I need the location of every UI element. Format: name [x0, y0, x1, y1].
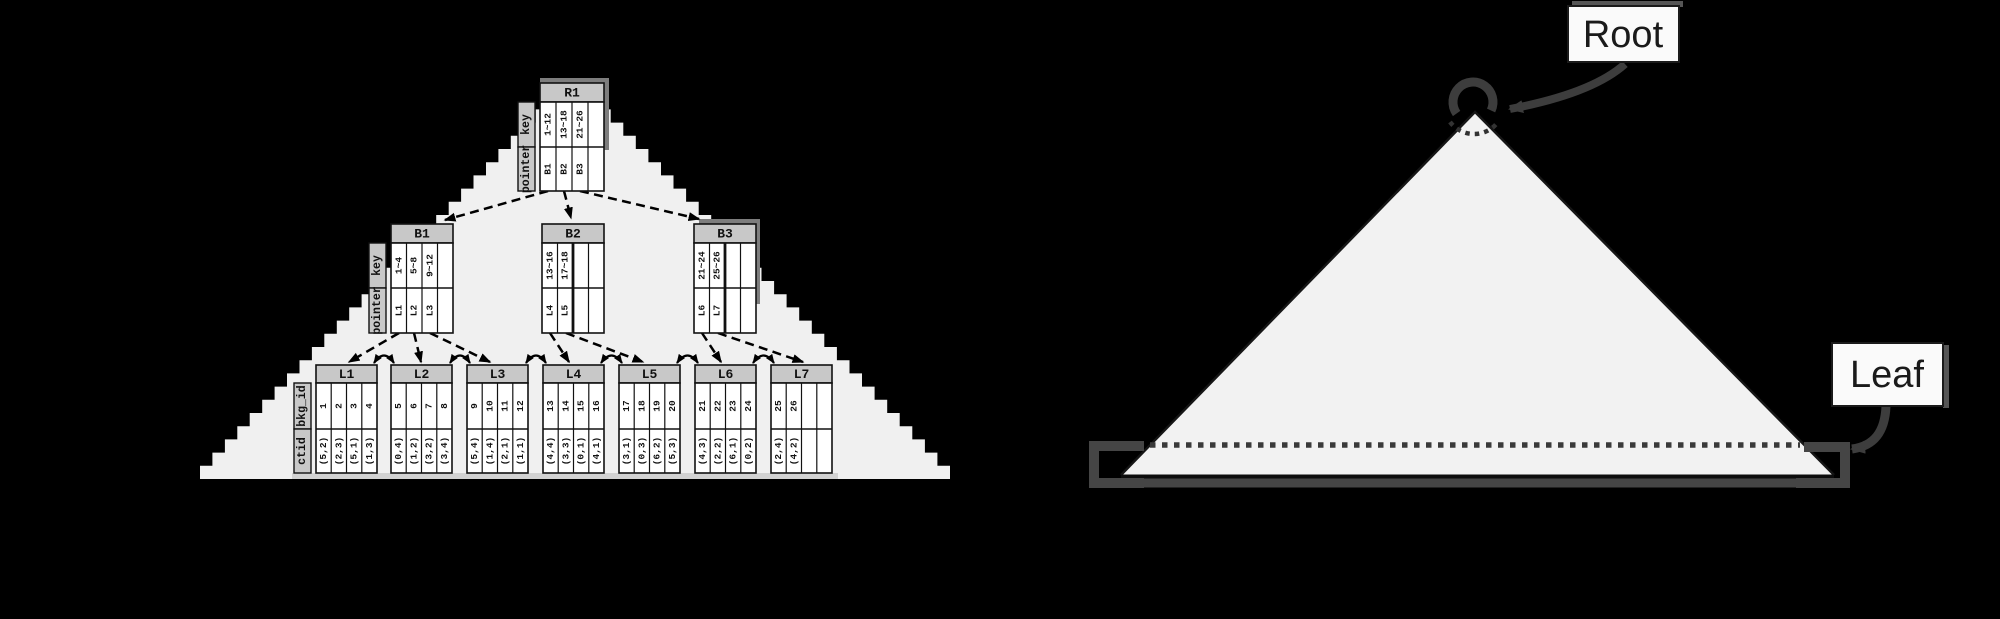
- svg-text:13~16: 13~16: [544, 251, 555, 280]
- svg-text:(1,3): (1,3): [364, 437, 375, 466]
- svg-text:(4,2): (4,2): [788, 437, 799, 466]
- svg-text:L4: L4: [566, 367, 582, 382]
- svg-text:L5: L5: [642, 367, 658, 382]
- svg-text:(5,3): (5,3): [667, 437, 678, 466]
- svg-text:1~12: 1~12: [543, 113, 554, 136]
- svg-text:L7: L7: [794, 367, 810, 382]
- svg-text:15: 15: [576, 400, 587, 412]
- svg-text:14: 14: [560, 400, 571, 412]
- svg-text:ctid: ctid: [296, 437, 309, 465]
- svg-text:L2: L2: [409, 305, 420, 317]
- svg-text:17~18: 17~18: [560, 251, 571, 280]
- svg-text:2: 2: [333, 403, 344, 409]
- svg-text:(6,2): (6,2): [652, 437, 663, 466]
- svg-text:5~8: 5~8: [409, 257, 420, 274]
- svg-text:L3: L3: [424, 305, 435, 317]
- svg-text:L7: L7: [712, 305, 723, 317]
- svg-text:(3,1): (3,1): [621, 437, 632, 466]
- svg-text:(2,3): (2,3): [333, 437, 344, 466]
- svg-text:7: 7: [424, 403, 435, 409]
- svg-text:(1,4): (1,4): [484, 437, 495, 466]
- svg-text:key: key: [371, 255, 384, 276]
- svg-text:L5: L5: [560, 305, 571, 317]
- svg-text:L6: L6: [718, 367, 734, 382]
- svg-text:21: 21: [697, 400, 708, 412]
- svg-text:(4,1): (4,1): [591, 437, 602, 466]
- svg-text:9~12: 9~12: [424, 254, 435, 277]
- svg-text:(0,4): (0,4): [393, 437, 404, 466]
- svg-text:B1: B1: [414, 227, 430, 242]
- svg-text:B2: B2: [565, 227, 581, 242]
- svg-text:4: 4: [364, 403, 375, 409]
- svg-text:R1: R1: [564, 86, 580, 101]
- svg-text:key: key: [520, 114, 533, 135]
- svg-text:25~26: 25~26: [712, 251, 723, 280]
- svg-text:1: 1: [318, 403, 329, 409]
- svg-text:5: 5: [393, 403, 404, 409]
- svg-text:B3: B3: [575, 163, 586, 175]
- svg-text:Root: Root: [1583, 14, 1664, 56]
- svg-text:8: 8: [439, 403, 450, 409]
- svg-text:1~4: 1~4: [393, 257, 404, 274]
- svg-text:24: 24: [743, 400, 754, 412]
- svg-text:25: 25: [773, 400, 784, 412]
- svg-text:(6,1): (6,1): [728, 437, 739, 466]
- svg-text:21~26: 21~26: [575, 110, 586, 139]
- svg-text:L2: L2: [414, 367, 430, 382]
- svg-text:21~24: 21~24: [696, 251, 707, 280]
- svg-text:L1: L1: [393, 305, 404, 317]
- svg-text:bkg_id: bkg_id: [296, 385, 309, 427]
- svg-text:23: 23: [728, 400, 739, 412]
- svg-text:11: 11: [500, 400, 511, 412]
- svg-text:L6: L6: [696, 305, 707, 317]
- svg-text:22: 22: [712, 400, 723, 412]
- svg-text:20: 20: [667, 400, 678, 412]
- svg-text:(5,4): (5,4): [469, 437, 480, 466]
- svg-text:18: 18: [636, 400, 647, 412]
- svg-text:16: 16: [591, 400, 602, 412]
- svg-text:9: 9: [469, 403, 480, 409]
- svg-text:(3,2): (3,2): [424, 437, 435, 466]
- svg-text:B3: B3: [717, 227, 733, 242]
- svg-text:(4,3): (4,3): [697, 437, 708, 466]
- svg-text:B2: B2: [559, 163, 570, 175]
- svg-text:L1: L1: [339, 367, 355, 382]
- svg-text:(1,1): (1,1): [515, 437, 526, 466]
- svg-text:pointer: pointer: [371, 286, 384, 334]
- svg-text:(3,3): (3,3): [560, 437, 571, 466]
- svg-text:B1: B1: [543, 163, 554, 175]
- svg-text:(2,4): (2,4): [773, 437, 784, 466]
- svg-text:19: 19: [652, 400, 663, 412]
- svg-text:pointer: pointer: [520, 145, 533, 193]
- svg-text:(0,3): (0,3): [636, 437, 647, 466]
- svg-text:(2,2): (2,2): [712, 437, 723, 466]
- svg-text:13~18: 13~18: [559, 110, 570, 139]
- svg-text:(0,1): (0,1): [576, 437, 587, 466]
- svg-text:12: 12: [515, 400, 526, 412]
- svg-text:6: 6: [408, 403, 419, 409]
- svg-text:17: 17: [621, 400, 632, 412]
- svg-text:L3: L3: [490, 367, 506, 382]
- svg-text:(4,4): (4,4): [545, 437, 556, 466]
- svg-text:(3,4): (3,4): [439, 437, 450, 466]
- svg-text:L4: L4: [544, 305, 555, 317]
- svg-text:26: 26: [788, 400, 799, 412]
- svg-text:(1,2): (1,2): [408, 437, 419, 466]
- svg-text:Leaf: Leaf: [1850, 354, 1924, 396]
- svg-text:13: 13: [545, 400, 556, 412]
- svg-text:10: 10: [484, 400, 495, 412]
- svg-text:3: 3: [349, 403, 360, 409]
- svg-text:(0,2): (0,2): [743, 437, 754, 466]
- svg-text:(5,2): (5,2): [318, 437, 329, 466]
- svg-text:(2,1): (2,1): [500, 437, 511, 466]
- svg-text:(5,1): (5,1): [349, 437, 360, 466]
